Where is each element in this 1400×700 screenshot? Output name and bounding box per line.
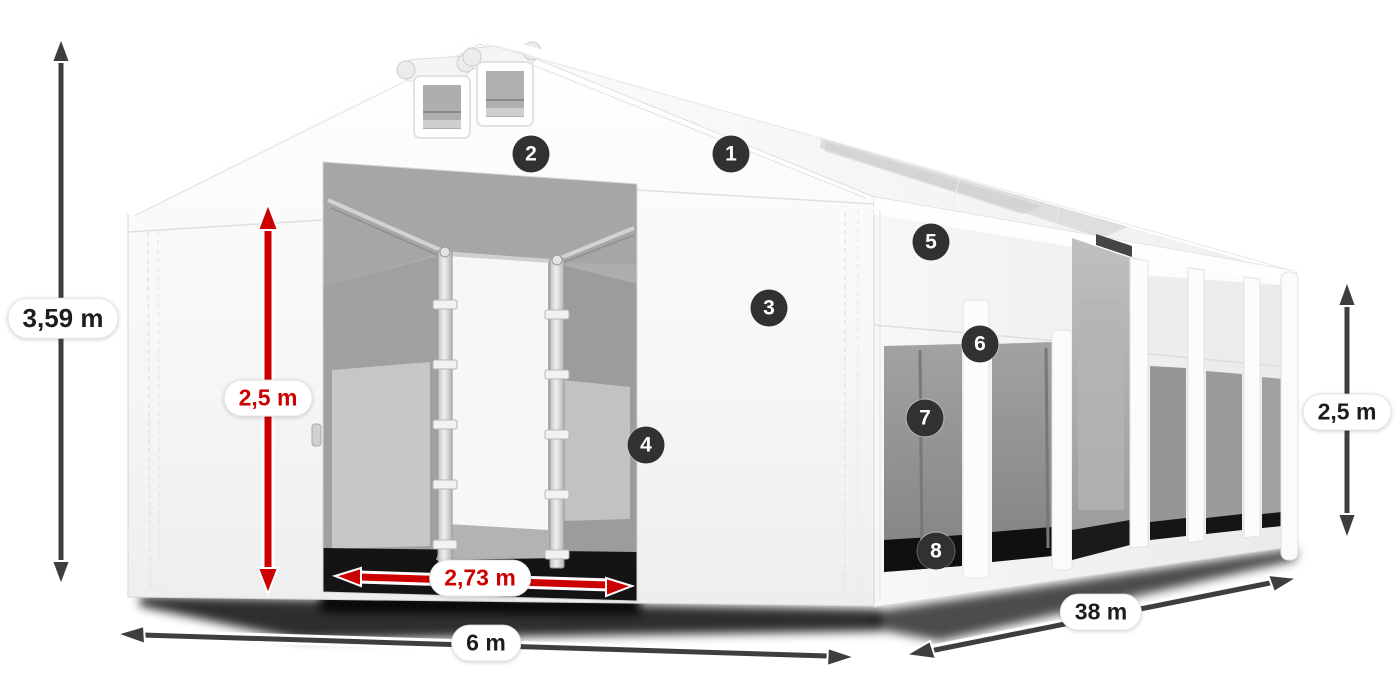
label-side-height: 2,5 m	[1303, 394, 1392, 431]
corner-pillar	[1281, 272, 1298, 560]
label-width: 6 m	[451, 625, 521, 662]
side-wall-post	[1052, 330, 1072, 570]
hotspot-8[interactable]: 8	[918, 533, 955, 570]
side-window-4	[1206, 371, 1242, 534]
hotspot-1[interactable]: 1	[713, 136, 750, 173]
side-window-5	[1262, 377, 1282, 528]
side-wall-post	[1244, 277, 1260, 538]
tent-interior	[323, 162, 637, 601]
hotspot-5[interactable]: 5	[913, 224, 950, 261]
product-dimension-diagram: 1 2 3 4 5 6 7 8 3,59 m 2,5 m 2,73 m 6 m …	[0, 0, 1400, 700]
hotspot-7[interactable]: 7	[907, 400, 944, 437]
side-window-3	[1150, 366, 1186, 540]
door-handle	[312, 424, 321, 446]
side-wall-post	[1188, 268, 1204, 543]
side-window-2	[992, 342, 1052, 562]
label-total-height: 3,59 m	[8, 298, 119, 339]
hotspot-6[interactable]: 6	[962, 326, 999, 363]
label-length: 38 m	[1060, 594, 1142, 631]
side-wall-post	[1130, 258, 1148, 548]
hotspot-4[interactable]: 4	[628, 427, 665, 464]
label-door-width: 2,73 m	[429, 560, 531, 597]
hotspot-2[interactable]: 2	[513, 136, 550, 173]
hotspot-3[interactable]: 3	[751, 290, 788, 327]
tent-illustration	[0, 0, 1400, 700]
label-inner-door-height: 2,5 m	[224, 380, 313, 417]
side-door-gap	[1072, 234, 1132, 560]
